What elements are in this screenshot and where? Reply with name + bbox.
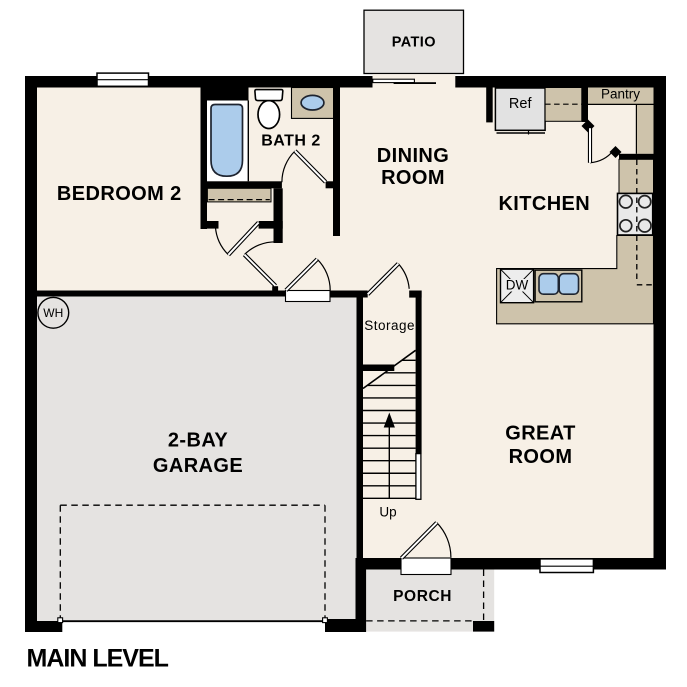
svg-text:PATIO: PATIO — [392, 34, 436, 50]
svg-text:MAIN LEVEL: MAIN LEVEL — [27, 645, 169, 673]
svg-text:BEDROOM 2: BEDROOM 2 — [57, 183, 182, 205]
svg-text:BATH 2: BATH 2 — [261, 133, 321, 150]
svg-text:Storage: Storage — [364, 318, 415, 333]
svg-text:ROOM: ROOM — [381, 167, 445, 189]
svg-text:WH: WH — [43, 306, 63, 320]
svg-text:DW: DW — [506, 277, 529, 292]
svg-text:2-BAY: 2-BAY — [168, 430, 228, 452]
svg-text:Pantry: Pantry — [601, 87, 640, 102]
svg-text:Ref: Ref — [509, 96, 533, 112]
svg-text:DINING: DINING — [377, 145, 449, 167]
svg-text:GARAGE: GARAGE — [153, 455, 243, 477]
svg-text:PORCH: PORCH — [393, 588, 452, 605]
svg-text:Up: Up — [379, 505, 396, 520]
svg-text:KITCHEN: KITCHEN — [498, 193, 590, 215]
svg-text:GREAT: GREAT — [505, 423, 576, 445]
svg-text:ROOM: ROOM — [509, 446, 573, 468]
